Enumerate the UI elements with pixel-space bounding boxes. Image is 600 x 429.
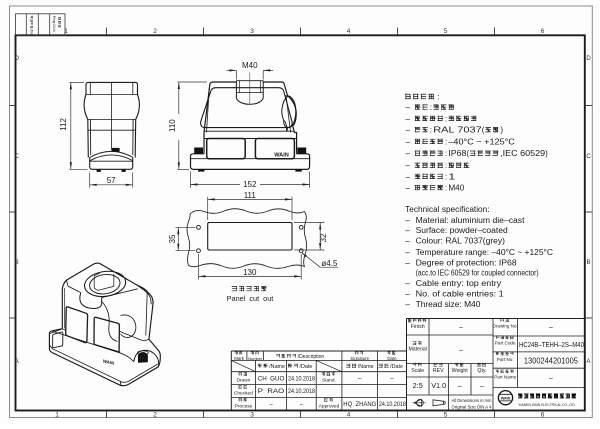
svg-text:–: – [480,383,484,390]
svg-text:/Name: /Name [269,364,285,370]
svg-text:24.10.2018: 24.10.2018 [379,401,406,408]
svg-text:Signature: Signature [350,356,369,361]
svg-text:Material: Material [408,347,426,353]
svg-text:All Dimensions in mm: All Dimensions in mm [452,398,492,403]
svg-text:4: 4 [347,412,351,419]
svg-text:Part No.: Part No. [497,357,514,362]
svg-text::: : [445,149,447,158]
svg-text:–: – [390,375,394,382]
svg-text:/Description: /Description [298,354,325,360]
svg-text:B: B [586,260,590,266]
svg-text:6: 6 [541,28,545,35]
svg-text:–: – [459,347,463,354]
svg-text:WAIN: WAIN [501,397,511,401]
svg-text:35: 35 [168,234,177,243]
svg-text:IP68: IP68 [448,149,466,158]
svg-text:Panel cut out: Panel cut out [227,294,274,303]
svg-text:Thread size: M40: Thread size: M40 [416,300,481,309]
svg-text:–: – [358,375,362,382]
svg-text:4: 4 [347,28,351,35]
svg-text:M40: M40 [242,61,258,70]
svg-text:Temperature range: –40°C ~ +12: Temperature range: –40°C ~ +125°C [416,248,554,257]
svg-text:5: 5 [444,412,448,419]
svg-text:–: – [459,325,463,332]
svg-text::: : [445,161,447,170]
svg-text:Date: Date [387,356,397,361]
svg-text:–: – [406,172,411,181]
svg-text:2: 2 [153,412,157,419]
svg-text:Degree of protection: IP68: Degree of protection: IP68 [416,258,518,267]
svg-text::: : [437,92,439,102]
svg-text:HQ ZHANG: HQ ZHANG [343,401,376,408]
svg-text:Technical specification:: Technical specification: [405,205,489,214]
svg-text:–40°C ~ +125°C: –40°C ~ +125°C [448,137,515,146]
svg-text:Qty.: Qty. [477,368,486,374]
svg-text:Material: aluminium die–cast: Material: aluminium die–cast [416,216,526,225]
svg-text::: : [430,126,432,135]
svg-text:Mark: Mark [234,356,245,361]
svg-text:D: D [586,56,591,62]
svg-text:–: – [405,226,410,235]
svg-text:(acc.to IEC 60529 for coupled: (acc.to IEC 60529 for coupled connector) [416,269,539,278]
svg-text:Part Code: Part Code [495,341,516,346]
svg-text:HC24B–TEHH–2S–M40: HC24B–TEHH–2S–M40 [519,340,584,349]
svg-text:Checked: Checked [234,390,253,396]
svg-text:–: – [405,216,410,225]
svg-text:WAIN: WAIN [274,152,289,158]
svg-text:–: – [406,137,411,146]
svg-text:Approved: Approved [319,403,340,409]
svg-text:24.10.2018: 24.10.2018 [288,375,315,382]
svg-text::: : [445,137,447,146]
svg-text:–: – [549,376,553,383]
svg-text:3: 3 [250,412,254,419]
svg-text:152: 152 [243,180,257,189]
svg-text:C: C [15,154,20,160]
svg-text:Scale: Scale [411,368,424,374]
svg-text:Drawn: Drawn [236,377,250,383]
svg-text:–: – [458,383,462,390]
svg-text:–: – [406,149,411,158]
svg-text:–: – [405,290,410,299]
svg-text:–: – [405,237,410,246]
svg-text:1300244201005: 1300244201005 [524,356,578,365]
svg-text:,IEC 60529: ,IEC 60529 [500,149,545,158]
svg-text:110: 110 [168,119,177,132]
svg-text:CH GUO: CH GUO [258,375,285,382]
svg-text:24.10.2018: 24.10.2018 [288,388,315,395]
svg-text:130: 130 [243,268,257,277]
svg-text:57: 57 [107,176,116,185]
svg-text:ø4.5: ø4.5 [321,259,338,268]
svg-text:/Date: /Date [390,364,403,370]
svg-text:Process: Process [235,403,253,409]
svg-text:–: – [269,401,273,408]
svg-text:RAL 7037: RAL 7037 [433,126,482,135]
svg-text:–: – [405,300,410,309]
svg-text:): ) [545,149,548,158]
svg-text::: : [430,103,432,112]
svg-text:111: 111 [244,191,257,200]
svg-text:–: – [406,114,411,123]
svg-text::: : [445,184,447,193]
svg-text:Finish: Finish [411,324,425,330]
svg-text:–: – [406,161,411,170]
svg-text:1: 1 [448,172,455,181]
svg-text::: : [445,172,447,181]
svg-text:Part Name: Part Name [494,375,516,380]
svg-text:–: – [405,258,410,267]
svg-text:32: 32 [319,233,328,242]
svg-text:–: – [406,184,411,193]
svg-text:V1.0: V1.0 [431,381,446,390]
svg-text:2: 2 [153,28,157,35]
svg-text:B: B [15,260,19,266]
svg-text:1: 1 [55,412,59,419]
svg-text:/Name: /Name [358,364,374,370]
svg-text:Drawing No.: Drawing No. [493,323,518,328]
svg-text:–: – [405,279,410,288]
svg-text:Weight: Weight [452,368,469,374]
svg-text:2:5: 2:5 [413,381,423,390]
svg-text::: : [445,114,447,123]
svg-text:112: 112 [59,117,68,130]
svg-text:5: 5 [444,28,448,35]
svg-text:Stand.: Stand. [322,377,336,383]
svg-text:(: ( [466,149,469,158]
svg-text:/Date: /Date [29,30,33,36]
svg-text:Original Size DIN A 4: Original Size DIN A 4 [452,404,492,409]
svg-text:A: A [586,359,590,365]
svg-text:XIAMEN WAIN ELECTRICAL CO.,LTD: XIAMEN WAIN ELECTRICAL CO.,LTD [518,402,575,407]
svg-text:P RAO: P RAO [258,388,285,395]
svg-text:3: 3 [250,28,254,35]
svg-text:REV.: REV. [433,368,445,374]
svg-text:–: – [406,103,411,112]
svg-text:C: C [586,154,591,160]
svg-text:A: A [15,359,19,365]
svg-text:Colour: RAL 7037(grey): Colour: RAL 7037(grey) [416,237,506,246]
svg-text:): ) [500,126,503,135]
svg-text:No. of cable entries: 1: No. of cable entries: 1 [416,290,504,299]
svg-text:M40: M40 [448,184,465,193]
svg-text:Filing Clerk: Filing Clerk [52,16,56,32]
svg-text:D: D [15,56,20,62]
svg-text:–: – [406,126,411,135]
svg-text:Cable entry: top entry: Cable entry: top entry [416,279,502,288]
svg-text:6: 6 [541,412,545,419]
svg-text:Surface: powder–coated: Surface: powder–coated [416,226,508,235]
svg-text:/Date: /Date [299,364,312,370]
svg-text:–: – [405,248,410,257]
svg-text:–: – [549,325,553,332]
svg-text:(: ( [482,126,485,135]
svg-text:Number: Number [248,356,263,361]
svg-text:–: – [300,401,304,408]
